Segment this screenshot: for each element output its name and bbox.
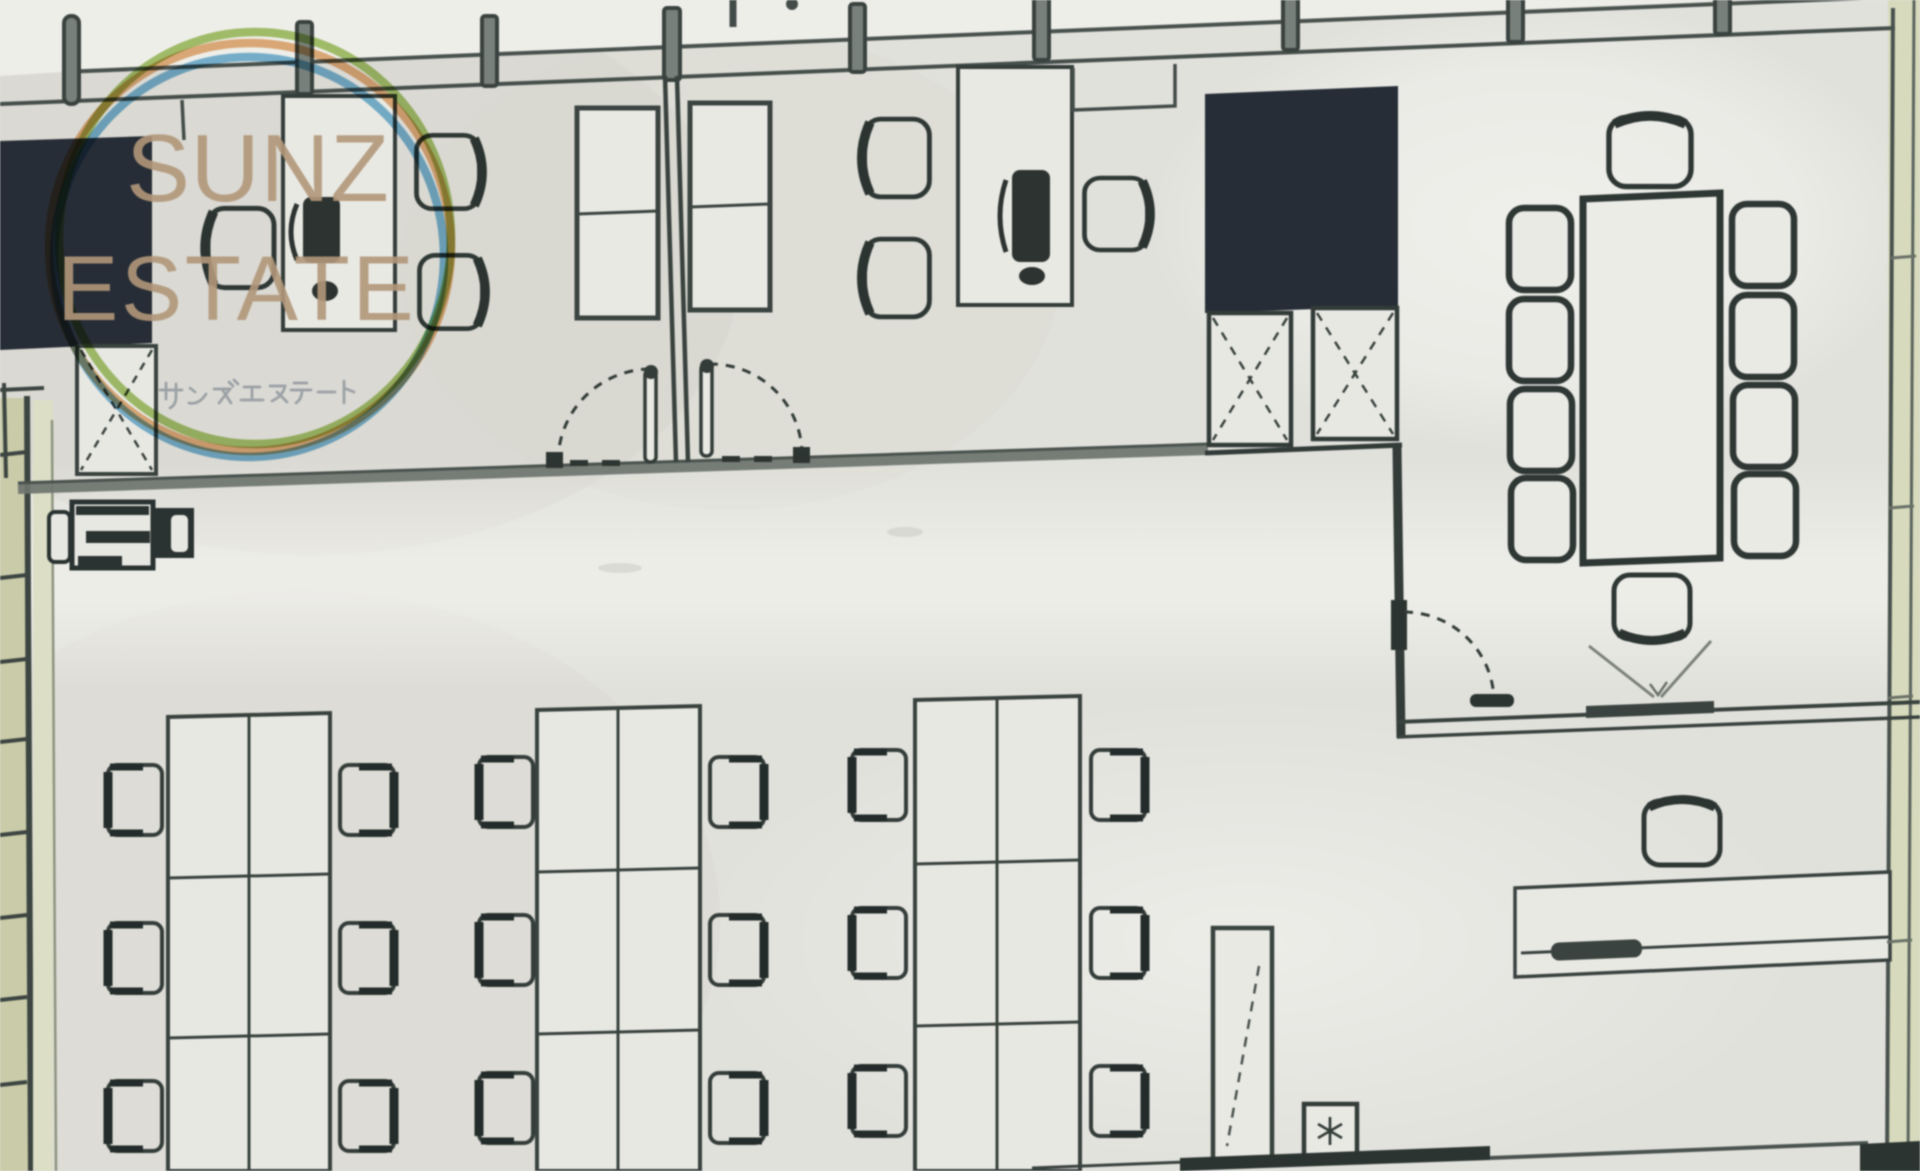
svg-text:ESTATE: ESTATE	[57, 238, 416, 340]
svg-text:SUNZ: SUNZ	[126, 115, 389, 222]
